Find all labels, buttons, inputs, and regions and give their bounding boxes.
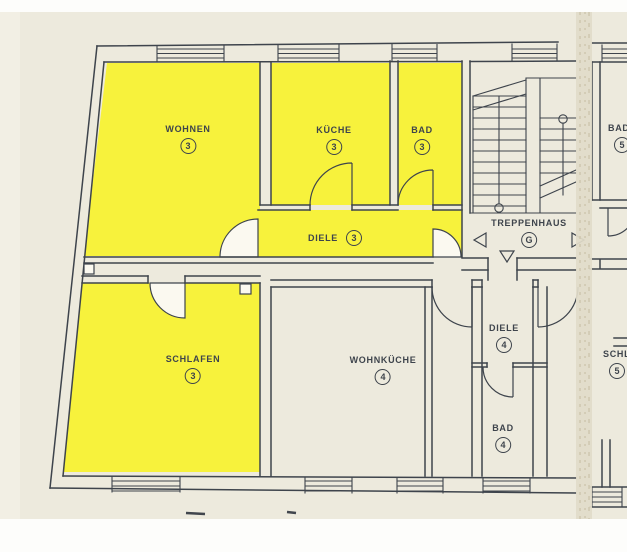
room-label-bad-3: BAD 3 xyxy=(411,125,433,155)
floorplan-scan-page: WOHNEN 3 KÜCHE 3 BAD 3 DIELE 3 TREPPENHA… xyxy=(0,0,627,552)
room-number-badge: 3 xyxy=(346,230,362,246)
room-number-badge: 3 xyxy=(185,368,201,384)
room-name: DIELE xyxy=(308,233,338,243)
room-label-kueche: KÜCHE 3 xyxy=(316,125,352,155)
room-name: SCHLAFEN xyxy=(166,354,221,364)
room-label-diele-3: DIELE 3 xyxy=(308,230,362,246)
room-label-wohnkueche: WOHNKÜCHE 4 xyxy=(350,355,417,385)
room-number-badge: 5 xyxy=(614,137,627,153)
room-label-wohnen: WOHNEN 3 xyxy=(165,124,210,154)
floor-plan-drawing xyxy=(0,0,627,552)
room-name: BAD xyxy=(411,125,433,135)
room-number-badge: 5 xyxy=(609,363,625,379)
room-number-badge: 3 xyxy=(326,139,342,155)
fold-crease xyxy=(576,12,592,519)
room-name: WOHNEN xyxy=(165,124,210,134)
room-number-badge: 4 xyxy=(496,337,512,353)
room-label-diele-4: DIELE 4 xyxy=(489,323,519,353)
room-name: KÜCHE xyxy=(316,125,352,135)
room-number-badge: G xyxy=(521,232,537,248)
room-number-badge: 3 xyxy=(180,138,196,154)
room-label-bad-5-partial: BAD 5 xyxy=(608,123,627,153)
room-name: TREPPENHAUS xyxy=(491,218,567,228)
room-label-treppenhaus: TREPPENHAUS G xyxy=(491,218,567,248)
room-name: BAD xyxy=(492,423,514,433)
room-number-badge: 4 xyxy=(495,437,511,453)
room-label-bad-4: BAD 4 xyxy=(492,423,514,453)
room-name: WOHNKÜCHE xyxy=(350,355,417,365)
room-label-schlafen: SCHLAFEN 3 xyxy=(166,354,221,384)
room-name: DIELE xyxy=(489,323,519,333)
room-name: BAD xyxy=(608,123,627,133)
room-number-badge: 3 xyxy=(414,139,430,155)
room-label-right-partial: SCHLAFEN 5 xyxy=(603,349,627,379)
room-number-badge: 4 xyxy=(375,369,391,385)
room-name: SCHLAFEN xyxy=(603,349,627,359)
